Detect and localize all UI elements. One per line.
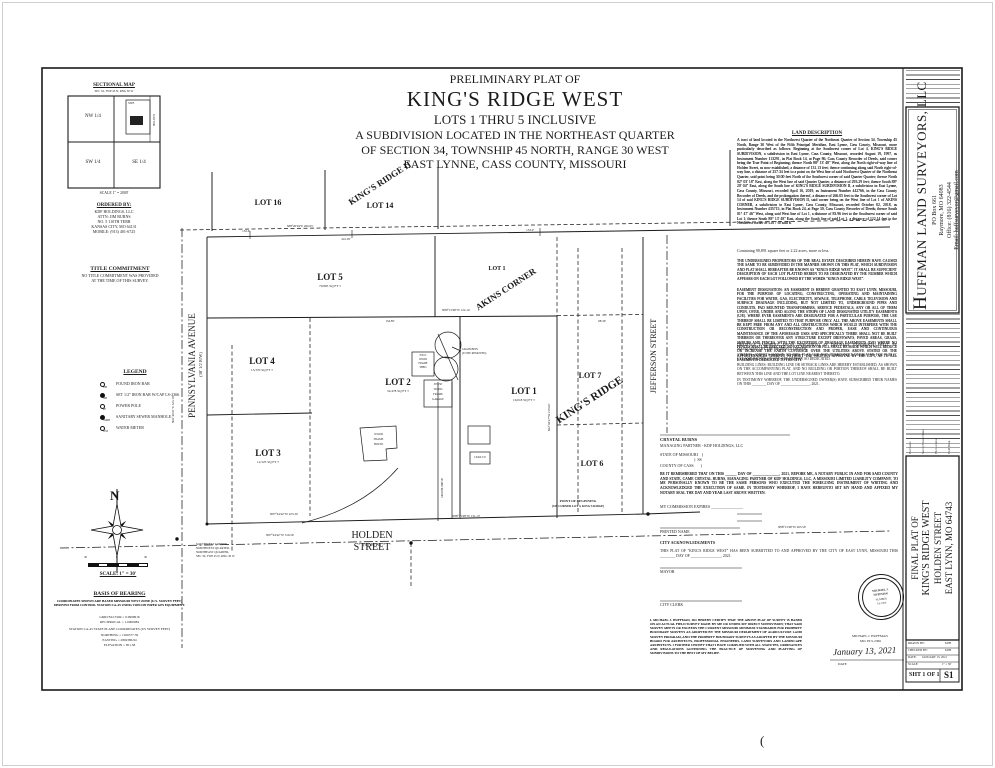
info-row-value: MJH [945, 649, 951, 653]
building-lines-note: BUILDING LINES: BUILDING LINE OR SETBACK… [737, 363, 897, 376]
lot-label: LOT 6 [564, 459, 620, 469]
dim-label: N89°13'48"W 122.14' [424, 309, 488, 313]
info-row-label: CHECKED BY: [908, 649, 928, 653]
testimony-clause: IN TESTIMONY WHEREOF, THE UNDERSIGNED OW… [737, 378, 897, 387]
lot-label: LOT 2 [368, 377, 428, 388]
basis-reciprocal: RECIPROCAL = 1.0000084 [52, 620, 187, 624]
revision-col-label: Survey/Client Name [922, 319, 926, 454]
gravel-drive-label: GRAVEL DRIVE [441, 471, 444, 505]
revision-hatch-mid [906, 314, 960, 455]
house-note: HOUSE [362, 443, 395, 446]
seal-number: LS-2366 [877, 601, 886, 605]
notary-acknowledgment: BE IT REMEMBERED THAT ON THIS ______ DAY… [660, 472, 898, 495]
street-label-pennsylvania: PENNSYLVANIA AVENUE [187, 303, 198, 428]
streets-dedication: STREETS: STREETS SHOWN ON THIS PLAT AND … [737, 353, 897, 362]
legend-sym-abbr: SIB [103, 397, 107, 400]
commission-expires: MY COMMISSION EXPIRES ________________ [660, 505, 743, 510]
firm-address-1: PO Box 661 [932, 110, 939, 310]
building-outlines [302, 332, 490, 523]
garage-note: GARAGE [424, 398, 452, 401]
land-description-title: LAND DESCRIPTION [737, 131, 897, 137]
info-row-value: MJH [945, 642, 951, 646]
scalebar-tick: 30 [144, 556, 147, 560]
revision-col-label: Plat Name [909, 319, 913, 454]
lot-label: LOT 1 [474, 266, 520, 273]
subtitle-1: A SUBDIVISION LOCATED IN THE NORTHEAST Q… [300, 128, 730, 143]
house-note: WOOD [362, 433, 395, 436]
sectional-map-subtitle: SEC 34, TWP 45 N, RNG 30 W [68, 90, 160, 94]
dim-label: 132.6' [228, 230, 264, 234]
basis-of-bearing-title: BASIS OF BEARING [52, 591, 187, 598]
scalebar-tick: 30 [84, 556, 87, 560]
legend-sym-abbr: SSMH [103, 419, 110, 422]
header-title-block: PRELIMINARY PLAT OF KING'S RIDGE WEST LO… [300, 72, 730, 172]
scale-bar [88, 563, 148, 567]
leanto-note: LEAN-TO [470, 456, 490, 459]
lots-line: LOTS 1 THRU 5 INCLUSIVE [300, 112, 730, 128]
dim-label: 241.05' [328, 238, 364, 242]
firm-name: UFFMAN LAND SURVEYORS, LLC [914, 81, 929, 296]
lot-label: LOT 1 [494, 386, 554, 397]
owner-title: MANAGING PARTNER - KDF HOLDINGS, LLC [660, 444, 743, 449]
street-rw-pennsylvania: (30' 1/2 R/W) [198, 317, 203, 412]
basis-grid-factor: GRID FACTOR = 0.9999916 [52, 615, 187, 619]
point-of-beginning-label: POINT OF BEGINNING [528, 499, 628, 503]
basis-paragraph: COORDINATES SHOWN ARE BASED MISSOURI WES… [50, 599, 189, 607]
sheet-title-block: FINAL PLAT OF KING'S RIDGE WEST HOLDEN S… [910, 460, 958, 636]
lot-area: 12,325 SQ FT ± [233, 460, 303, 464]
dim-label: N88°13'48"W 131.13' [430, 515, 502, 519]
scalebar-tick: 0 [116, 556, 118, 560]
legend-sym-abbr: FIB [103, 386, 107, 389]
basis-easting: EASTING = 2802386.94 [52, 638, 187, 642]
subtitle-2: OF SECTION 34, TOWNSHIP 45 NORTH, RANGE … [300, 143, 730, 158]
owner-certificate: THE UNDERSIGNED PROPRIETORS OF THE REAL … [737, 259, 897, 281]
basis-elevation: ELEVATION = 851.58 [52, 643, 187, 647]
sheet-number: S1 [944, 670, 954, 681]
pre-title: PRELIMINARY PLAT OF [300, 72, 730, 87]
lot-label: LOT 16 [240, 198, 296, 208]
firm-phone: Office: (816) 322-4544 [947, 110, 954, 310]
house-note: FRAME [362, 438, 395, 441]
monument-markers [175, 512, 649, 544]
sheet-title-line: FINAL PLAT OF [910, 460, 921, 636]
city-acknowledgments-title: CITY ACKNOWLEDGMENTS [660, 541, 715, 546]
garage-note: 30'X50' [424, 383, 452, 386]
info-row-label: DRAWN BY: [908, 642, 925, 646]
info-row-label: DATE: [908, 656, 917, 660]
legend-title: LEGEND [95, 369, 175, 376]
garage-note: WOOD [424, 388, 452, 391]
site-label: SITE [128, 102, 134, 106]
dim-label: 134.85' [372, 320, 408, 324]
sectional-scale: SCALE 1" = 2000' [68, 191, 160, 196]
owner-name: CRYSTAL BURNS [660, 437, 697, 442]
stray-scan-mark: ( [760, 733, 764, 749]
street-label-jefferson: JEFFERSON STREET [649, 276, 659, 436]
legend-sym-abbr: PP [103, 408, 106, 411]
city-approval-clause: THIS PLAT OF "KING'S RIDGE WEST" HAS BEE… [660, 549, 898, 558]
sheet-title-line: HOLDEN STREET [933, 460, 944, 636]
quarter-nw: NW 1/4 [72, 114, 114, 120]
dim-label: 98.36' [584, 320, 620, 324]
legend-sym-abbr: WM [103, 430, 108, 433]
sectional-map-lines [68, 96, 160, 188]
surveyor-printed-name: MICHAEL J. HUFFMAN [852, 634, 888, 638]
sheet-title-line: KING'S RIDGE WEST [921, 460, 933, 636]
surveyor-license: MO. PLS-2366 [860, 639, 881, 643]
subtitle-3: EAST LYNNE, CASS COUNTY, MISSOURI [300, 157, 730, 172]
info-row-value: JANUARY 13, 2021 [922, 656, 947, 660]
firm-title-block: HUFFMAN LAND SURVEYORS, LLC PO Box 661 R… [909, 110, 959, 310]
north-label: N [110, 488, 119, 504]
shed-note: FRAME [412, 362, 434, 365]
basis-station: STATION CA-45 STATE PLANE COORDINATES (U… [50, 627, 189, 631]
sheet-title-line: EAST LYNN, MO 64743 [944, 460, 955, 636]
firm-email: Email: huffsurveyor@gmail.com [954, 110, 961, 310]
dim-label: S02°04'27"W 218.00' [548, 365, 552, 470]
revision-col-label: File Location [935, 319, 939, 454]
lot-label: LOT 4 [232, 356, 292, 367]
lot-area: 13,370 SQ FT ± [227, 368, 297, 372]
grain-bins-note-sub: (TO BE REMOVED) [462, 352, 486, 355]
title-commitment-title: TITLE COMMITMENT [55, 266, 185, 273]
info-row-value: 1" = 30' [942, 663, 951, 667]
lot-area: 32,478 SQ FT ± [363, 389, 433, 393]
surveyor-certificate: I, MICHAEL J. HUFFMAN, DO HEREBY CERTIFY… [650, 618, 802, 655]
garage-note: FRAME [424, 393, 452, 396]
land-description-body: A tract of land located in the Northwest… [737, 138, 897, 226]
shed-note: SHED [412, 366, 434, 369]
page-title: KING'S RIDGE WEST [300, 87, 730, 113]
date-label: DATE [838, 662, 847, 666]
notary-county: COUNTY OF CASS ) [660, 464, 702, 469]
shed-note: 8'X10' [412, 354, 434, 357]
plat-sheet: PRELIMINARY PLAT OF KING'S RIDGE WEST LO… [0, 0, 995, 768]
dim-label: N87°44'42"W 223.34' [248, 513, 320, 517]
dim-label: 153.0' [512, 229, 548, 233]
printed-name-label: PRINTED NAME [660, 530, 690, 535]
dim-label: N88°13'48"W 265.56' [756, 526, 828, 530]
sheet-count: SHT 1 OF 1 [909, 672, 940, 679]
shed-note: WOOD [412, 358, 434, 361]
city-clerk-label: CITY CLERK [660, 603, 683, 608]
drainage-easement: DRAINAGE EASEMENT: AREAS DESIGNATED AS D… [737, 343, 897, 352]
quarter-se: SE 1/4 [118, 160, 160, 166]
scale-label: SCALE: 1" = 30' [88, 572, 148, 578]
signature-date-handwritten: January 13, 2021 [833, 645, 897, 658]
point-of-beginning-sub: (SW CORNER LOT 4, KING'S RIDGE) [522, 505, 634, 509]
quarter-sw: SW 1/4 [72, 160, 114, 166]
dim-label: S88°20'04"E 266.05' [268, 225, 332, 229]
lot-label: LOT 5 [300, 272, 360, 283]
title-commitment-line2: AT THE TIME OF THIS SURVEY. [55, 279, 185, 284]
info-row-label: SCALE: [908, 663, 918, 667]
grain-bins-note: GRAIN BINS [462, 348, 478, 351]
sectional-holden-label: HOLDEN [153, 100, 157, 140]
firm-address-2: Raymore, MO 64083 [939, 110, 946, 310]
ordered-by-line: MOBILE: (913) 401-6725 [58, 230, 170, 235]
lot-area: 70,895 SQ FT ± [295, 284, 365, 288]
street-rw-holden: (30' R/W) [348, 542, 396, 547]
revision-col-label: Field Book [948, 319, 952, 454]
dim-label: N01°40'21"E 323.10' [172, 357, 176, 462]
basis-northing: NORTHING = 1026377.59 [52, 633, 187, 637]
dim-label: N87°44'42"W 316.56' [244, 534, 316, 538]
firm-initial: H [910, 296, 931, 310]
lot-label: LOT 3 [238, 448, 298, 459]
land-description-containing: Containing 98,891 square feet or 2.22 ac… [737, 249, 897, 254]
sw-corner-note: SEC 34, TWP 45 N, RNG 30 W [196, 555, 235, 559]
mayor-label: MAYOR [660, 570, 675, 575]
